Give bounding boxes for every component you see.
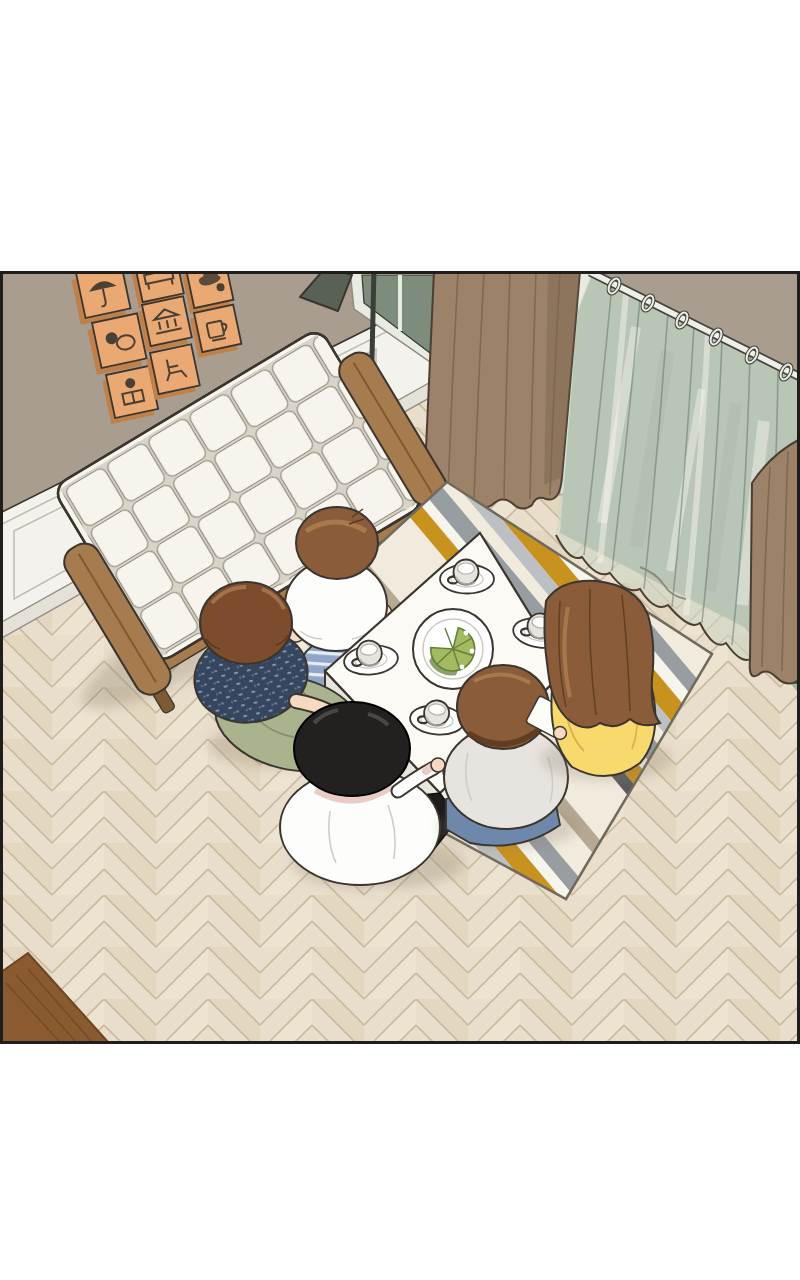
brown-curtain-left — [426, 271, 580, 509]
frame-bank-icon — [137, 296, 193, 352]
hair-left-person — [200, 582, 292, 664]
frame-mug-icon — [189, 305, 242, 358]
frame-circles-icon — [86, 313, 148, 375]
comic-page — [0, 0, 800, 1280]
hair-bottom-person — [294, 702, 410, 796]
brown-curtain-right — [750, 439, 800, 684]
hair-top-person — [296, 507, 378, 579]
scene-illustration — [0, 271, 800, 1044]
frame-chair-icon — [145, 344, 201, 400]
comic-panel — [0, 271, 800, 1044]
hand — [554, 727, 567, 740]
